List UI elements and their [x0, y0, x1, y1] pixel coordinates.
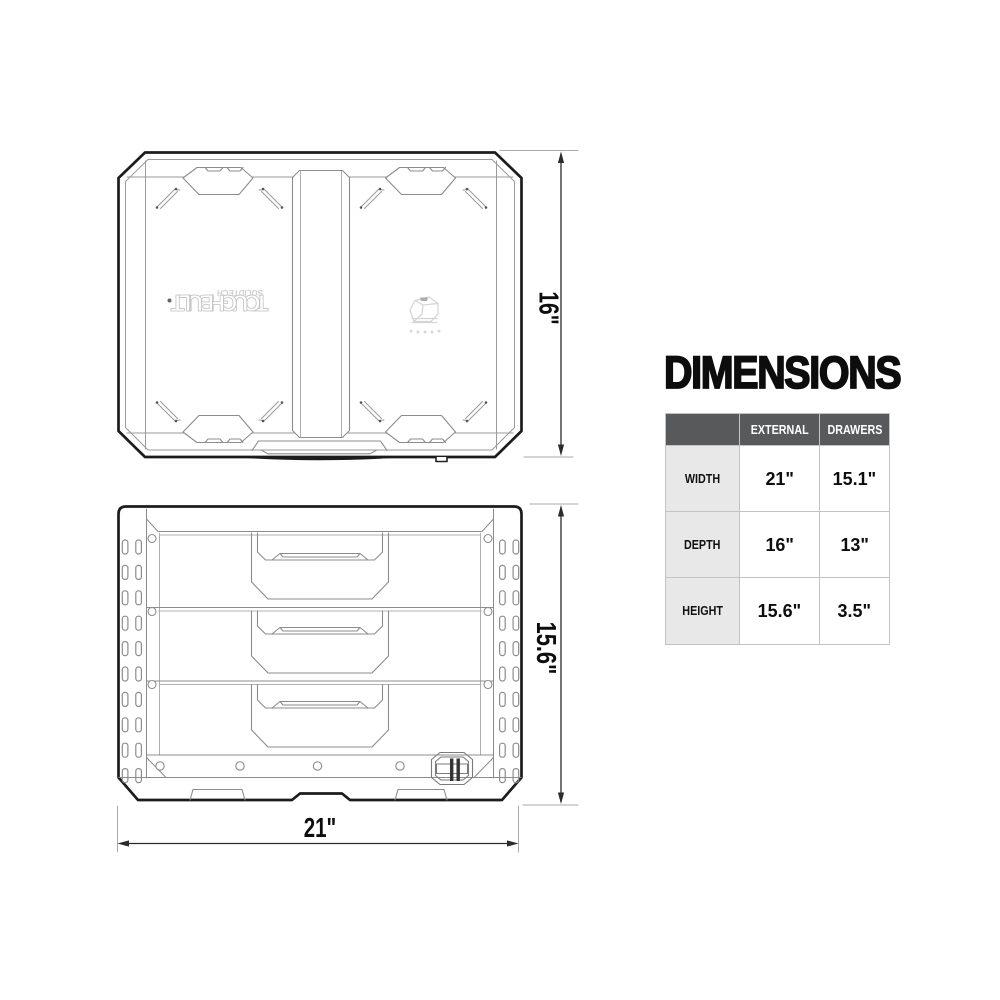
- svg-text:SOLIDTECH: SOLIDTECH: [217, 288, 263, 297]
- svg-text:15.6": 15.6": [530, 622, 561, 675]
- svg-text:16": 16": [533, 291, 564, 324]
- svg-text:21": 21": [304, 813, 336, 844]
